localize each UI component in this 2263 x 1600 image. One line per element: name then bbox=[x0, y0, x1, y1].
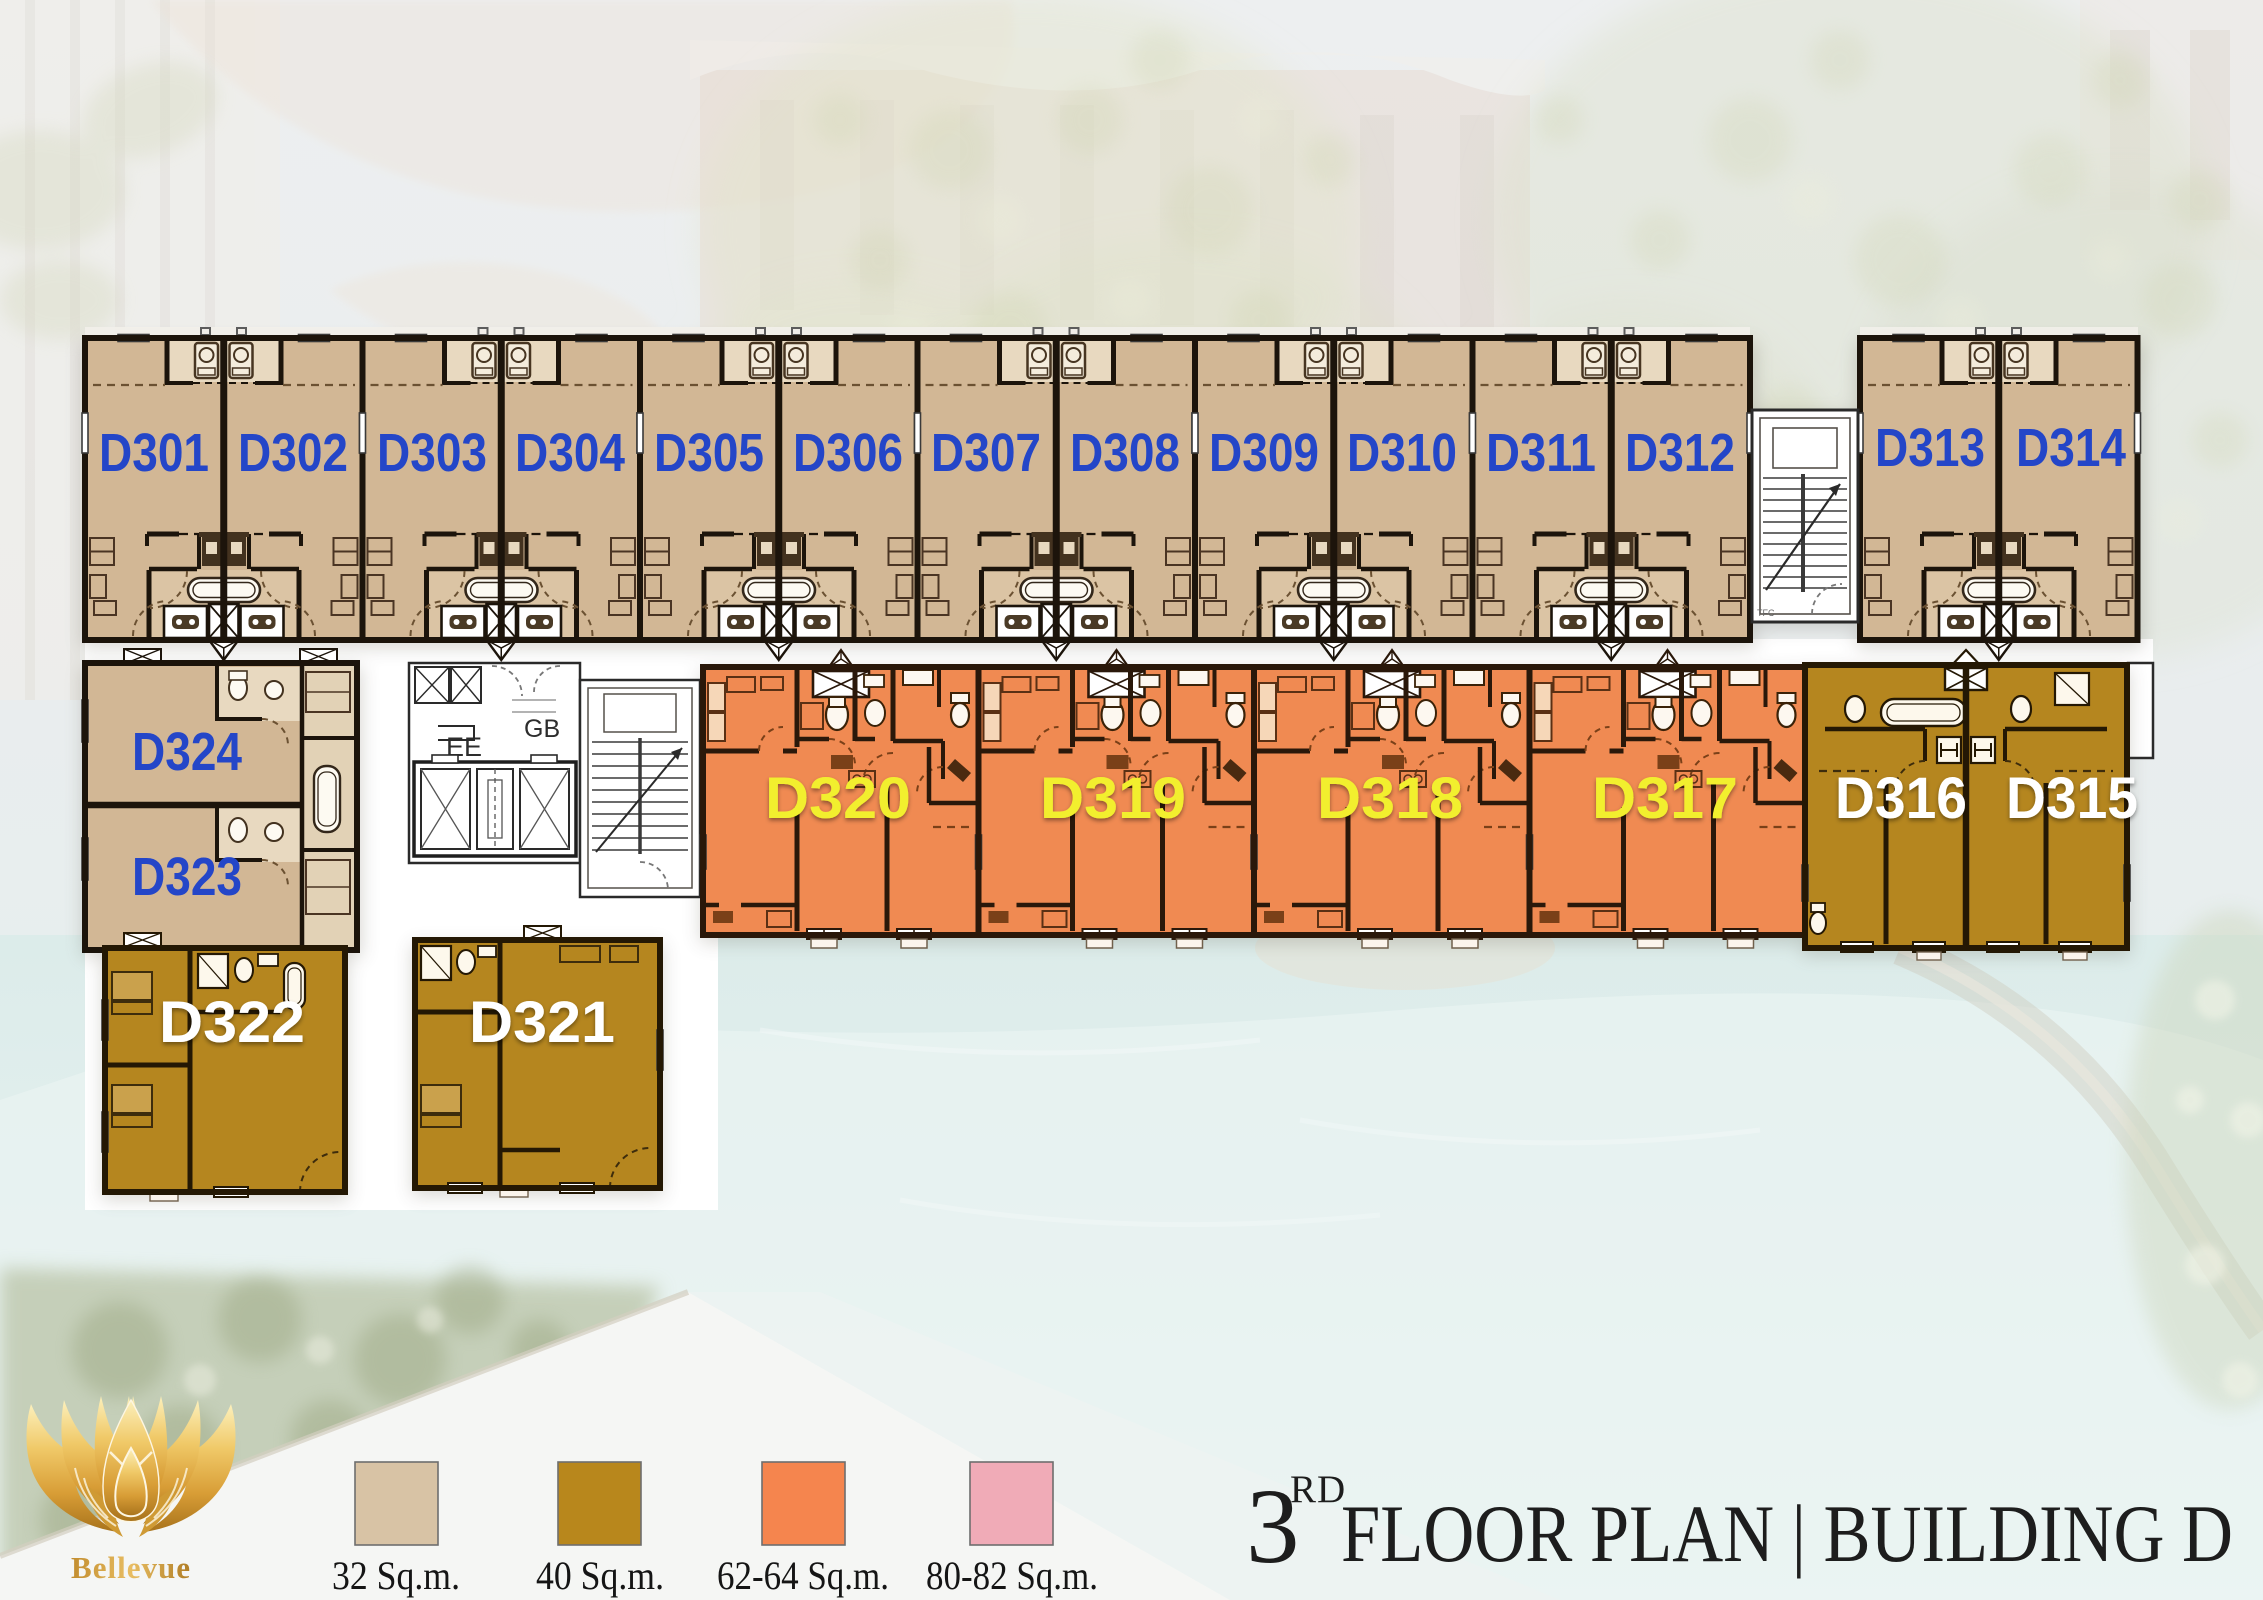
svg-text:D305: D305 bbox=[654, 423, 764, 483]
svg-text:TFC: TFC bbox=[1757, 608, 1775, 618]
svg-text:D311: D311 bbox=[1486, 423, 1596, 483]
svg-text:D310: D310 bbox=[1347, 423, 1457, 483]
svg-text:D301: D301 bbox=[99, 423, 209, 483]
svg-text:GB: GB bbox=[524, 715, 560, 743]
svg-text:D319: D319 bbox=[1040, 766, 1186, 831]
svg-text:62-64 Sq.m.: 62-64 Sq.m. bbox=[717, 1553, 889, 1598]
svg-text:D315: D315 bbox=[2006, 766, 2138, 831]
svg-text:D317: D317 bbox=[1592, 766, 1738, 831]
svg-text:D318: D318 bbox=[1317, 766, 1463, 831]
svg-text:RD: RD bbox=[1290, 1468, 1346, 1511]
svg-text:D313: D313 bbox=[1875, 418, 1985, 478]
svg-text:D324: D324 bbox=[132, 722, 242, 782]
svg-text:Bellevue: Bellevue bbox=[71, 1550, 191, 1585]
svg-text:D302: D302 bbox=[238, 423, 348, 483]
svg-text:D307: D307 bbox=[931, 423, 1041, 483]
svg-text:D303: D303 bbox=[377, 423, 487, 483]
svg-text:D308: D308 bbox=[1070, 423, 1180, 483]
svg-text:FLOOR PLAN | BUILDING D: FLOOR PLAN | BUILDING D bbox=[1341, 1488, 2233, 1579]
svg-text:D323: D323 bbox=[132, 847, 242, 907]
svg-text:D306: D306 bbox=[793, 423, 903, 483]
svg-text:40 Sq.m.: 40 Sq.m. bbox=[536, 1553, 664, 1598]
svg-text:80-82 Sq.m.: 80-82 Sq.m. bbox=[926, 1553, 1098, 1598]
svg-text:32 Sq.m.: 32 Sq.m. bbox=[332, 1553, 460, 1598]
svg-text:D312: D312 bbox=[1625, 423, 1735, 483]
svg-text:D309: D309 bbox=[1209, 423, 1319, 483]
svg-text:D304: D304 bbox=[515, 423, 625, 483]
svg-text:D316: D316 bbox=[1835, 766, 1967, 831]
svg-text:D322: D322 bbox=[159, 990, 305, 1055]
svg-text:D320: D320 bbox=[765, 766, 911, 831]
svg-text:D321: D321 bbox=[469, 990, 615, 1055]
svg-text:D314: D314 bbox=[2016, 418, 2126, 478]
